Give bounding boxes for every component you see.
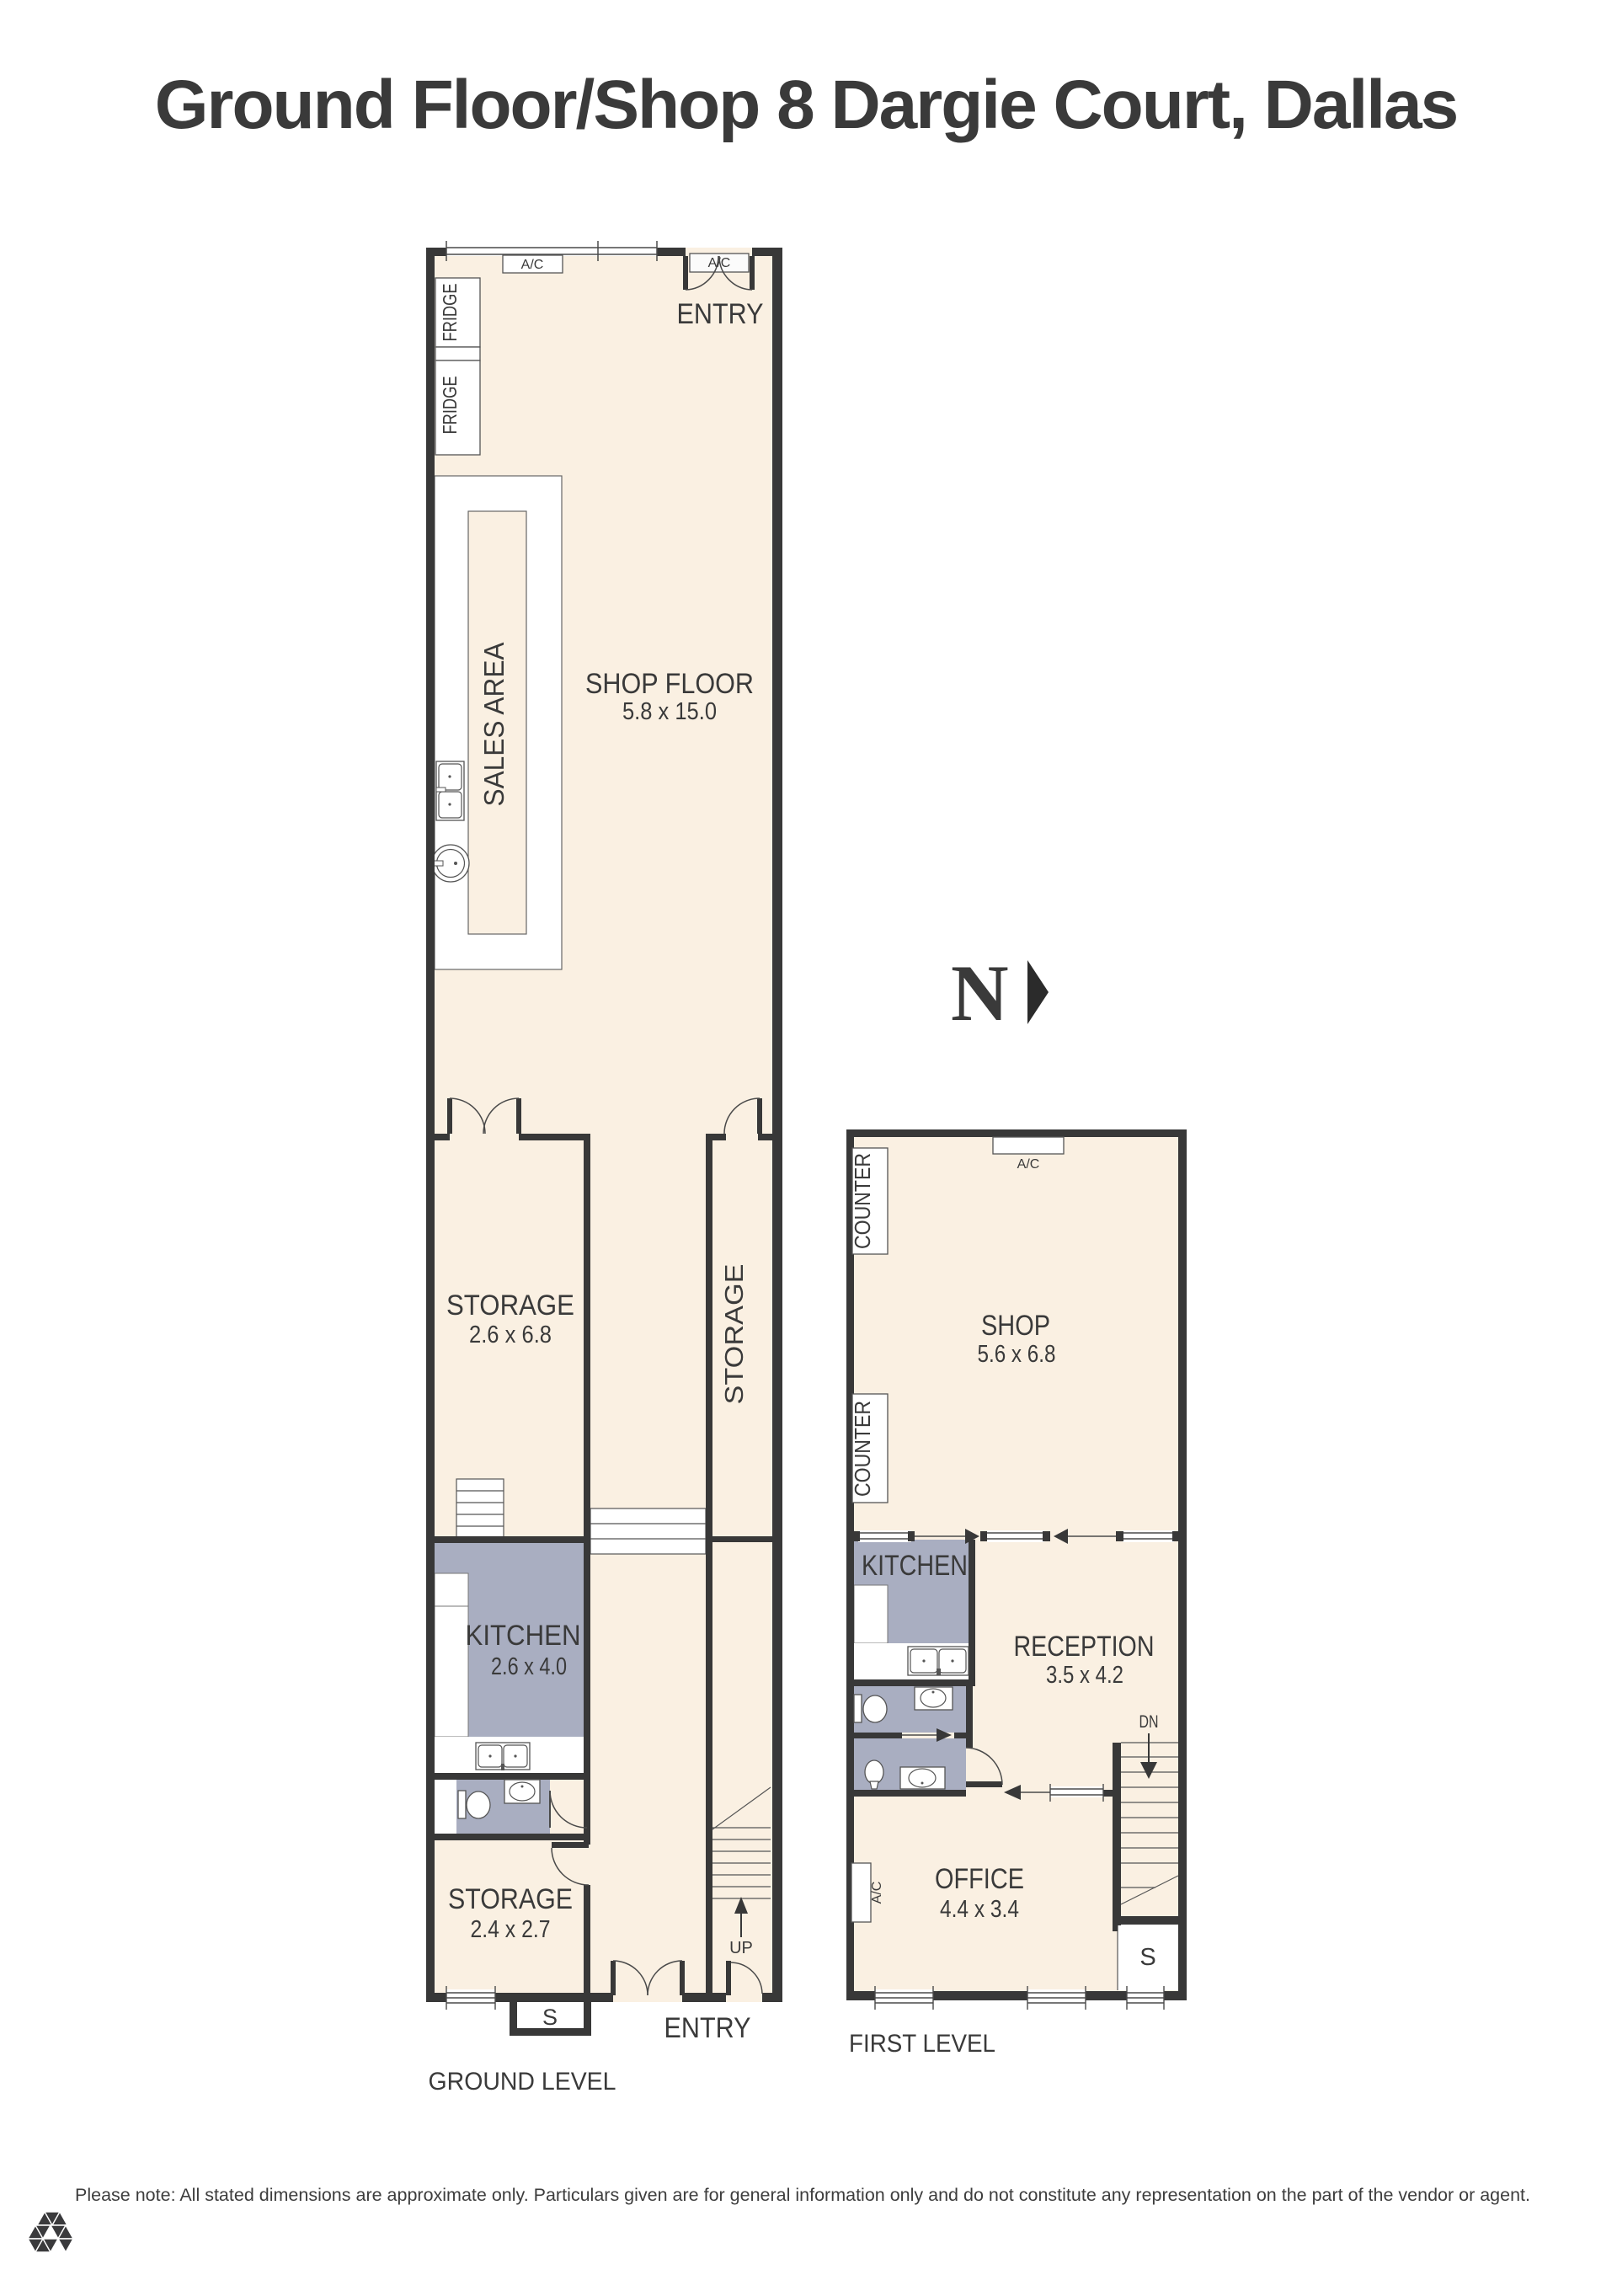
svg-text:STORAGE: STORAGE [448, 1883, 573, 1915]
svg-text:DN: DN [1139, 1712, 1159, 1732]
svg-text:COUNTER: COUNTER [850, 1153, 875, 1249]
svg-text:GROUND LEVEL: GROUND LEVEL [429, 2068, 616, 2096]
svg-text:A/C: A/C [521, 258, 544, 272]
svg-text:4.4 x 3.4: 4.4 x 3.4 [940, 1896, 1019, 1923]
svg-text:Ground Floor/Shop 8 Dargie Cou: Ground Floor/Shop 8 Dargie Court, Dallas [155, 67, 1457, 143]
svg-text:FRIDGE: FRIDGE [439, 284, 461, 342]
svg-text:3.5 x 4.2: 3.5 x 4.2 [1046, 1662, 1123, 1689]
svg-text:KITCHEN: KITCHEN [862, 1550, 968, 1582]
svg-text:ENTRY: ENTRY [677, 298, 764, 330]
svg-text:FIRST LEVEL: FIRST LEVEL [849, 2030, 995, 2058]
svg-text:2.6 x 6.8: 2.6 x 6.8 [469, 1322, 552, 1348]
svg-text:N: N [951, 948, 1009, 1038]
svg-text:STORAGE: STORAGE [446, 1289, 574, 1322]
svg-text:S: S [1139, 1944, 1155, 1971]
svg-text:COUNTER: COUNTER [850, 1401, 875, 1497]
svg-text:ENTRY: ENTRY [664, 2012, 751, 2044]
svg-text:5.6 x 6.8: 5.6 x 6.8 [978, 1341, 1056, 1368]
svg-text:A/C: A/C [1017, 1157, 1040, 1172]
svg-text:OFFICE: OFFICE [935, 1863, 1024, 1895]
svg-text:RECEPTION: RECEPTION [1014, 1631, 1155, 1663]
svg-text:SHOP: SHOP [981, 1310, 1050, 1342]
svg-text:S: S [542, 2005, 558, 2030]
svg-text:2.4 x 2.7: 2.4 x 2.7 [471, 1916, 551, 1943]
svg-text:STORAGE: STORAGE [719, 1264, 749, 1405]
svg-text:2.6 x 4.0: 2.6 x 4.0 [491, 1653, 567, 1680]
svg-text:SHOP FLOOR: SHOP FLOOR [585, 668, 754, 700]
svg-text:FRIDGE: FRIDGE [439, 376, 461, 435]
svg-text:UP: UP [729, 1939, 753, 1957]
svg-text:SALES AREA: SALES AREA [478, 643, 510, 807]
svg-text:A/C: A/C [870, 1882, 884, 1904]
svg-text:Please note: All stated dimens: Please note: All stated dimensions are a… [75, 2186, 1530, 2205]
svg-text:5.8 x 15.0: 5.8 x 15.0 [622, 698, 717, 725]
svg-text:KITCHEN: KITCHEN [466, 1620, 581, 1652]
